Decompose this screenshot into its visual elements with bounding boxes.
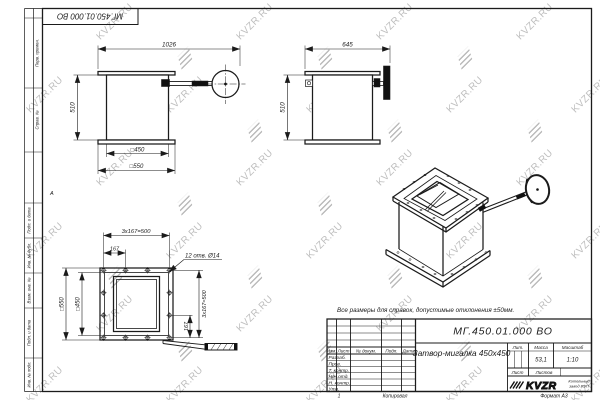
iso-bolt-hole <box>434 273 436 275</box>
hole-center-mark <box>166 290 172 296</box>
front-body <box>98 71 239 145</box>
margin-label: Справ. № <box>35 110 40 129</box>
tb-h-scale: Масштаб <box>562 345 584 350</box>
footer-copied: Копировал <box>383 393 408 399</box>
front-view: 1026 510 □450 □550 <box>70 42 246 175</box>
tb-doc-number: МГ.450.01.000 ВО <box>453 326 553 338</box>
iso-view <box>386 168 552 287</box>
plan-lever <box>163 341 237 351</box>
hole-center-mark <box>166 312 172 318</box>
dim-side-height: 510 <box>280 102 287 113</box>
tb-col-podp: Подп. <box>385 348 397 353</box>
hole-center-mark <box>100 290 106 296</box>
zone-col-number: 1 <box>338 393 341 399</box>
dim-front-inner: □450 <box>131 148 145 154</box>
plan-dim-lines <box>62 233 222 341</box>
drawing-sheet: KVZR.RUKVZR.RUKVZR.RUKVZR.RUKVZR.RUKVZR.… <box>0 0 600 400</box>
dim-front-height: 510 <box>70 102 77 113</box>
margin-label: Инв. № подл. <box>27 362 32 388</box>
iso-bolt-hole <box>409 259 411 261</box>
dim-plan-outer: □550 <box>60 297 66 311</box>
hole-center-mark <box>100 312 106 318</box>
tb-row-prov: Пров. <box>329 362 342 368</box>
footer-format: Формат А3 <box>540 393 568 399</box>
side-view: 645 510 <box>280 42 391 145</box>
top-stamp: МГ.450.01.000 ВО <box>43 9 139 25</box>
general-note: Все размеры для справок, допустимые откл… <box>337 306 514 314</box>
dim-plan-pitch-right: 3х167=500 <box>202 289 208 317</box>
pivot-boss <box>162 80 170 87</box>
margin-label: Подп. и дата <box>27 319 32 346</box>
left-margin-labels: Перв. примен. Справ. № Подп. и дата Инв.… <box>27 39 55 387</box>
bolt-holes <box>100 267 172 341</box>
drawing-canvas: Перв. примен. Справ. № Подп. и дата Инв.… <box>0 0 600 400</box>
dim-front-outer: □550 <box>130 164 144 170</box>
tb-h-sheets: Листов <box>535 370 553 375</box>
counterweight-edge <box>384 66 391 100</box>
tb-h-lit: Лит. <box>512 345 524 350</box>
title-block: МГ.450.01.000 ВО Затвор-мигалка 450х450 … <box>327 319 592 399</box>
stamp-doc-number: МГ.450.01.000 ВО <box>57 12 123 21</box>
tb-col-doc: № докум. <box>356 348 376 353</box>
weight-clamp <box>192 81 208 86</box>
iso-bolt-hole <box>422 266 424 268</box>
dim-plan-offset-right: 167 <box>184 321 190 331</box>
tb-row-tkontr: Т. контр. <box>329 368 350 374</box>
zone-row-letter: А <box>49 191 54 197</box>
margin-label: Инв. № дубл. <box>27 243 32 269</box>
margin-label: Подп. и дата <box>27 207 32 234</box>
tb-h-sheet: Лист <box>511 370 524 375</box>
side-body <box>305 66 390 144</box>
dim-front-width: 1026 <box>162 42 177 49</box>
tb-row-nkontr: Н. контр. <box>329 380 351 386</box>
tb-scale-value: 1:10 <box>567 358 579 364</box>
holes-note: 12 отв. Ø14 <box>185 254 220 260</box>
tb-col-data: Дата <box>401 348 415 353</box>
dim-plan-inner: □450 <box>76 297 82 311</box>
company-line2: завод РЭП <box>568 384 589 389</box>
tb-row-nachotd: Нач.отд. <box>329 374 349 380</box>
tb-name: Затвор-мигалка 450х450 <box>413 349 511 358</box>
plan-body <box>100 268 173 340</box>
tb-h-mass: Масса <box>534 345 548 350</box>
tb-row-razrab: Разраб. <box>329 355 346 361</box>
iso-flanges <box>393 168 488 232</box>
iso-bolt-hole <box>451 273 453 275</box>
dim-side-width: 645 <box>342 42 353 49</box>
tb-row-utv: Утв. <box>329 387 340 393</box>
dim-plan-pitch-top: 3х167=500 <box>122 229 152 235</box>
iso-lever <box>478 173 552 213</box>
tb-col-list: Лист <box>337 348 350 353</box>
kvzr-logo-text: KVZR <box>526 380 557 392</box>
dim-plan-offset-top: 167 <box>110 247 120 253</box>
iso-bolt-hole <box>397 252 399 254</box>
tb-col-izm: Изм. <box>327 348 337 353</box>
margin-label: Взам. инв. № <box>27 277 32 303</box>
kvzr-logo-icon <box>510 382 524 389</box>
margin-label: Перв. примен. <box>35 39 40 67</box>
plan-view: 3х167=500 167 12 отв. Ø14 □550 □450 3х16… <box>60 229 238 350</box>
tb-mass-value: 53,1 <box>535 358 547 364</box>
